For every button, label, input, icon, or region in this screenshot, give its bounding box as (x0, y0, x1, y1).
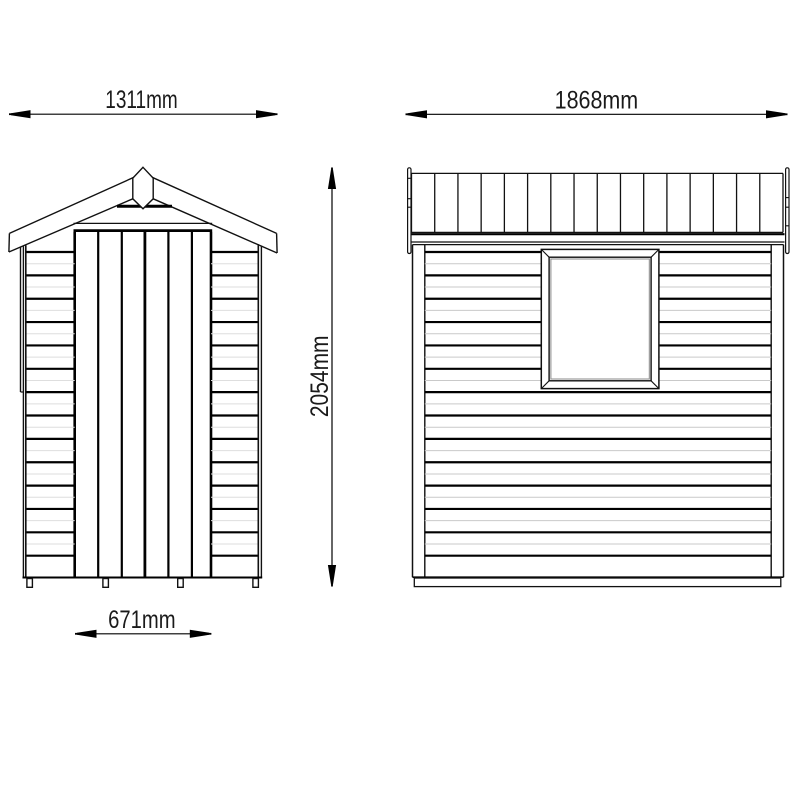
svg-text:1868mm: 1868mm (555, 86, 639, 114)
svg-text:2054mm: 2054mm (305, 335, 333, 417)
svg-text:671mm: 671mm (108, 605, 175, 634)
svg-text:1311mm: 1311mm (105, 85, 177, 113)
